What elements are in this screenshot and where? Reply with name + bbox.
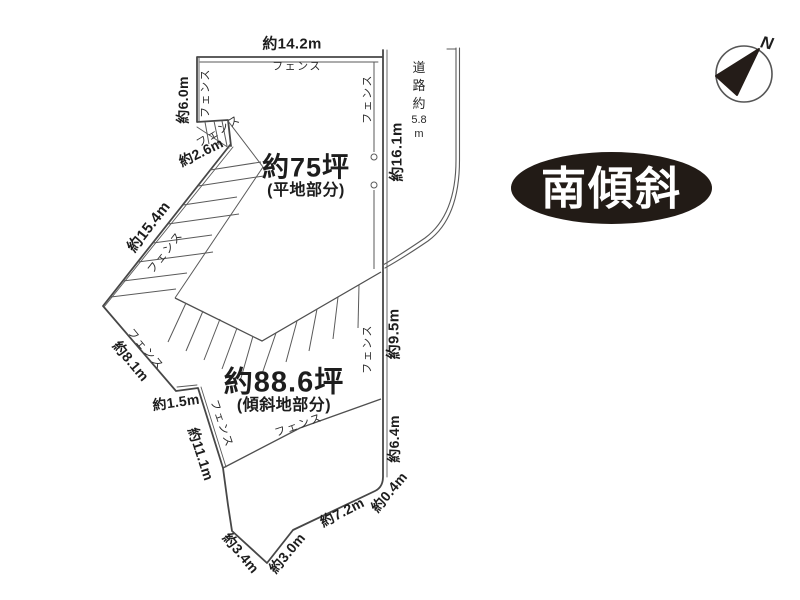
fence-post-marker	[371, 182, 377, 188]
flat-area-type: (平地部分)	[267, 183, 345, 199]
dim-east-upper: 約16.1m	[390, 122, 405, 181]
flat-area-size: 約75坪	[262, 155, 350, 182]
road-label-char: 路	[412, 77, 425, 95]
road-label: 道 路 約 5.8 m	[410, 59, 428, 141]
fence-label-east-top: フェンス	[363, 74, 374, 124]
slope-area-type: (傾斜地部分)	[237, 398, 331, 414]
south-slope-badge-text: 南傾斜	[541, 166, 682, 211]
slope-top-boundary	[175, 272, 381, 341]
land-plot-diagram: 約14.2m フェンス 約6.0m フェンス フェンス 約2.6m 約15.4m…	[0, 0, 800, 600]
dim-left: 約6.0m	[176, 76, 190, 123]
road-label-char: 約	[412, 95, 425, 113]
fence-label-left: フェンス	[201, 68, 212, 118]
road-label-char: 道	[412, 59, 425, 77]
nw-slope-hatching	[111, 121, 264, 298]
road-label-unit: m	[414, 127, 423, 141]
road-label-width: 5.8	[411, 113, 426, 127]
fence-label-top: フェンス	[272, 62, 322, 73]
plot-boundary	[103, 50, 383, 563]
south-slope-badge: 南傾斜	[511, 152, 712, 224]
fence-label-east-mid: フェンス	[363, 324, 374, 374]
dim-east-mid: 約9.5m	[387, 309, 402, 360]
slope-area-size: 約88.6坪	[224, 369, 344, 398]
dim-east-lower: 約6.4m	[387, 415, 401, 462]
slope-fan-hatching	[168, 285, 359, 378]
dim-top: 約14.2m	[262, 37, 321, 52]
compass	[716, 46, 772, 102]
plot-outline-svg	[0, 0, 800, 600]
fence-post-marker	[371, 154, 377, 160]
